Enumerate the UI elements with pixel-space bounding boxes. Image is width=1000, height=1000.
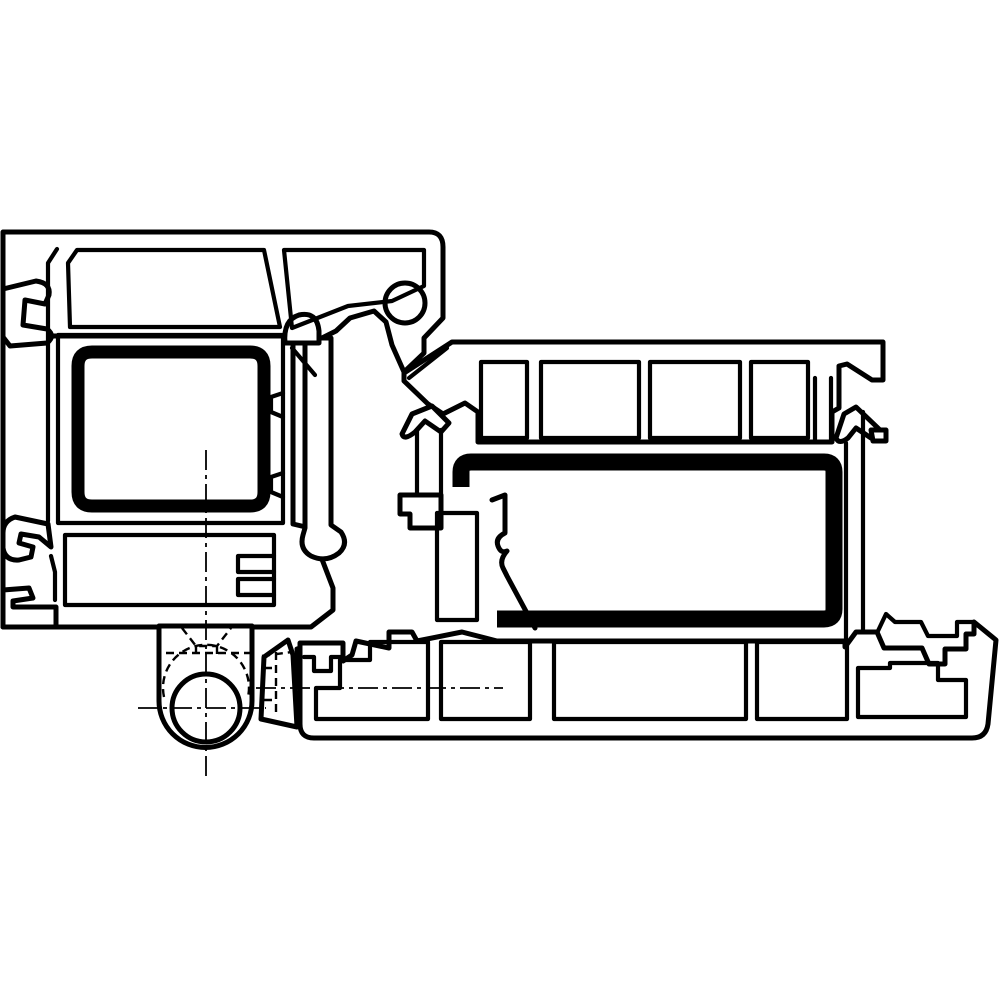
- sash-corner-hook: [871, 430, 886, 441]
- profile-cross-section-diagram: [0, 0, 1000, 1000]
- technical-drawing-canvas: [0, 0, 1000, 1000]
- sash-seal-foot: [400, 495, 441, 528]
- sash-seal-shaft: [417, 430, 441, 495]
- sill-clip-hook: [877, 614, 973, 636]
- sash-top-band: [404, 342, 883, 442]
- frame-glazing-leg: [301, 338, 345, 559]
- sash-wall-right: [846, 412, 863, 645]
- sash-wall-low: [492, 495, 535, 628]
